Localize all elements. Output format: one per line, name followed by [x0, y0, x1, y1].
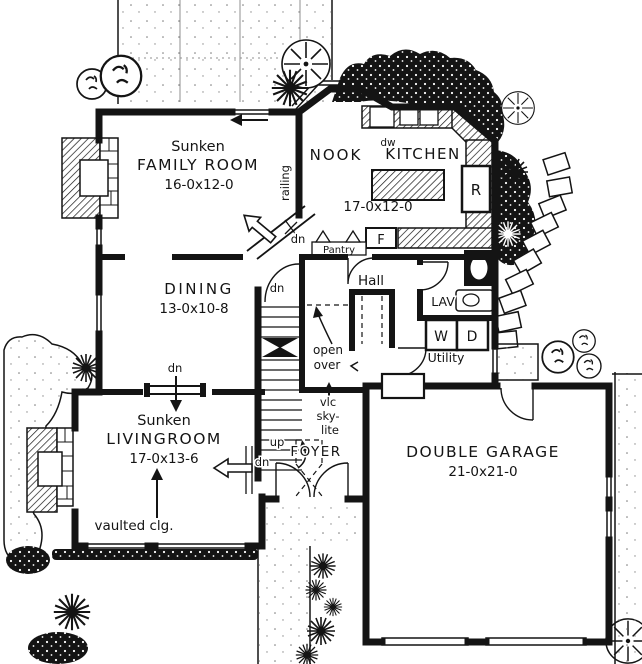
kitchen-fixtures	[312, 106, 492, 255]
pantry-shelf-mark	[316, 231, 330, 242]
door-garage-entry	[501, 388, 533, 420]
window-living-front	[85, 544, 248, 548]
hall-label: Hall	[358, 273, 384, 289]
fireplace-living-room	[27, 428, 73, 512]
floor-plan-page: Sunken FAMILY ROOM 16-0x12-0 railing dn …	[0, 0, 642, 664]
down-label-foyer: dn	[255, 455, 270, 469]
up-label-stairs: up	[270, 435, 285, 449]
foyer-label: FOYER	[290, 444, 341, 460]
bush-icon	[101, 56, 142, 97]
shrub-icon	[272, 70, 308, 106]
sliding-door-family	[232, 110, 272, 114]
open-over-label-1: open	[313, 343, 343, 357]
bush-icon	[577, 354, 601, 378]
down-label-family: dn	[291, 232, 306, 246]
closet-bifold	[362, 296, 382, 344]
pantry-label: Pantry	[323, 245, 355, 256]
garage-stoop	[382, 374, 424, 398]
door-utility	[398, 348, 426, 376]
refrigerator-label: R	[471, 181, 481, 199]
tree-icon	[502, 92, 535, 125]
sink	[420, 108, 438, 125]
laundry-fixtures	[422, 319, 490, 350]
patio-pad	[497, 344, 538, 380]
freezer-label: F	[377, 233, 384, 248]
family-room-prefix: Sunken	[171, 139, 225, 155]
bush-icon	[573, 330, 596, 353]
open-over-label-2: over	[314, 358, 341, 372]
sink	[400, 108, 418, 125]
railing-label: railing	[278, 165, 292, 201]
down-label-basement: dn	[270, 281, 285, 295]
door-lav	[420, 262, 448, 290]
pantry-shelf-mark	[346, 231, 360, 242]
dryer-label: D	[467, 329, 478, 345]
kitchen-dims: 17-0x12-0	[343, 199, 412, 215]
skylight-label-2: sky-	[317, 409, 340, 423]
side-walkway	[612, 372, 642, 664]
kitchen-label: KITCHEN	[385, 145, 461, 163]
counter-bottom	[398, 228, 492, 248]
utility-label: Utility	[428, 350, 465, 365]
stair-break-mark	[262, 338, 298, 348]
living-room-label: LIVINGROOM	[106, 430, 222, 448]
vaulted-ceiling-label: vaulted clg.	[94, 518, 173, 534]
living-room-prefix: Sunken	[137, 413, 191, 429]
dining-label: DINING	[164, 280, 233, 298]
bush-icon	[542, 341, 574, 373]
nook-label: NOOK	[310, 146, 363, 164]
window-dining-left	[97, 292, 101, 334]
stair-break-mark	[262, 347, 298, 357]
garage-dims: 21-0x21-0	[448, 464, 517, 480]
front-walk	[258, 503, 357, 664]
dining-dims: 13-0x10-8	[159, 301, 228, 317]
down-label-dining: dn	[168, 361, 183, 375]
fireplace-family-room	[62, 138, 118, 218]
open-over-edge	[307, 292, 352, 305]
living-room-dims: 17-0x13-6	[129, 451, 198, 467]
front-hedge	[52, 549, 258, 560]
skylight-label-1: vlc	[320, 395, 336, 409]
entry-door-left	[276, 463, 310, 497]
family-room-dims: 16-0x12-0	[164, 177, 233, 193]
vaulted-arrow	[151, 468, 163, 518]
lav-label: LAV	[431, 294, 455, 309]
washer-label: W	[434, 329, 448, 345]
skylight-label-3: lite	[321, 423, 339, 437]
garage-label: DOUBLE GARAGE	[406, 443, 560, 461]
entry-arrow-family	[230, 114, 268, 126]
family-room-label: FAMILY ROOM	[137, 156, 259, 174]
island-counter	[372, 170, 444, 200]
